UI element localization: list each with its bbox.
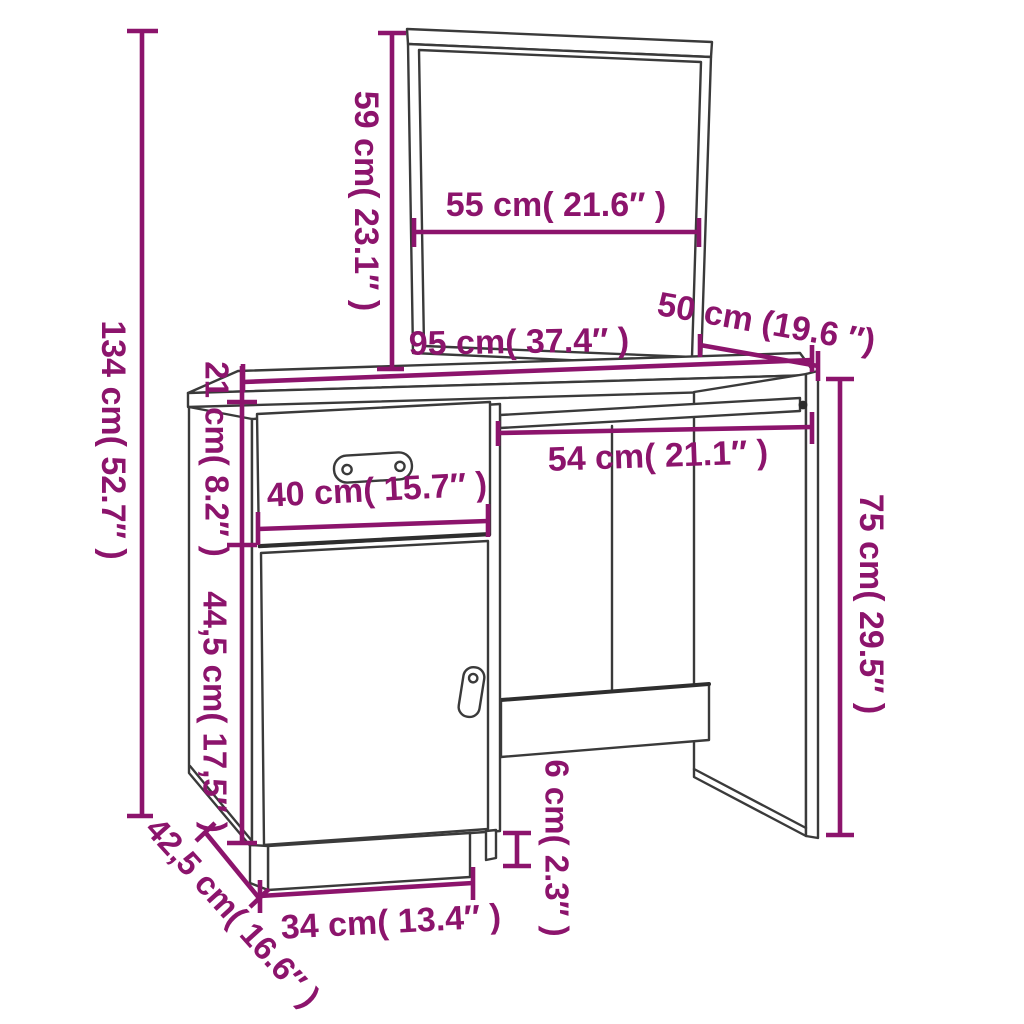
- diagram-canvas: 134 cm( 52.7″ )59 cm( 23.1″ )55 cm( 21.6…: [0, 0, 1024, 1024]
- dimension-label: 34 cm( 13.4″ ): [280, 897, 502, 946]
- dimension-foot-height: 6 cm( 2.3″ ): [503, 759, 575, 936]
- dimension-label: 75 cm( 29.5″ ): [852, 494, 890, 714]
- dimension-total-height: 134 cm( 52.7″ ): [94, 31, 158, 816]
- dimension-label: 134 cm( 52.7″ ): [94, 320, 132, 559]
- dimension-label: 21 cm( 8.2″ ): [198, 361, 235, 557]
- dimension-label: 59 cm( 23.1″ ): [347, 91, 385, 311]
- dimension-label: 44,5 cm( 17,5″ ): [196, 591, 233, 832]
- modesty-panel: [501, 684, 709, 757]
- dimension-label: 54 cm( 21.1″ ): [547, 433, 769, 479]
- modesty-panel-face: [501, 684, 709, 757]
- furniture-dimension-diagram: 134 cm( 52.7″ )59 cm( 23.1″ )55 cm( 21.6…: [0, 0, 1024, 1024]
- dimension-label: 95 cm( 37.4″ ): [408, 321, 629, 363]
- dimension-desk-height: 75 cm( 29.5″ ): [826, 379, 890, 835]
- cam-lock-knob: [799, 401, 808, 410]
- cabinet-door: [261, 541, 488, 845]
- dimension-label: 55 cm( 21.6″ ): [446, 186, 666, 224]
- dimension-label: 6 cm( 2.3″ ): [538, 759, 575, 936]
- dimension-mirror-height: 59 cm( 23.1″ ): [347, 33, 406, 369]
- cabinet-back-foot: [486, 830, 496, 860]
